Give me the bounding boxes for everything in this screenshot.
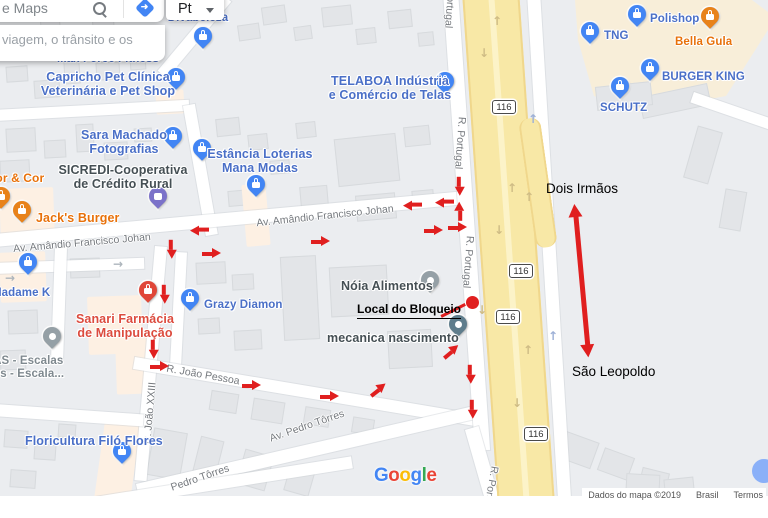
poi-pin-divabeleza[interactable] xyxy=(190,23,215,48)
red-arrow xyxy=(424,229,434,233)
poi-label-telaboa[interactable]: TELABOA Indústriae Comércio de Telas xyxy=(329,74,452,102)
building xyxy=(9,469,36,489)
poi-label-line: SCHUTZ xyxy=(600,102,647,115)
pin-glyph xyxy=(18,208,26,215)
street-label: R. João Pessoa xyxy=(165,363,240,388)
red-arrow xyxy=(320,395,330,399)
road xyxy=(0,404,144,426)
poi-label-grazy-diamon[interactable]: Grazy Diamon xyxy=(204,299,283,312)
shopping-bag-icon xyxy=(181,289,199,307)
red-arrow xyxy=(443,350,453,359)
poi-label-line: mecanica nascimento xyxy=(327,331,459,345)
restaurant-icon xyxy=(13,201,31,219)
google-maps-screenshot: ↑↓↑↑↑↓↓↑↓↑→→R. PortugalR. PortugalR. Por… xyxy=(0,0,768,518)
poi-label-burger-king[interactable]: BURGER KING xyxy=(662,71,745,84)
directions-icon[interactable]: ➜ xyxy=(135,0,155,18)
language-label: Pt xyxy=(178,1,192,17)
building xyxy=(683,125,723,184)
building xyxy=(355,27,377,45)
building xyxy=(403,125,431,148)
traffic-flow-arrow: ↑ xyxy=(548,329,558,343)
building xyxy=(5,65,28,82)
blockade-dot xyxy=(466,296,479,309)
poi-dot-icon xyxy=(43,327,61,345)
route-shield-116: 116 xyxy=(524,427,548,441)
google-logo-letter: o xyxy=(388,465,399,486)
poi-label-sara-machado[interactable]: Sara MachadoFotografias xyxy=(81,128,167,156)
poi-pin-burger-king[interactable] xyxy=(637,55,662,80)
poi-label-line: de Manipulação xyxy=(76,326,174,340)
poi-label-sicredi[interactable]: SICREDI-Cooperativade Crédito Rural xyxy=(58,163,187,191)
red-arrow xyxy=(162,285,166,295)
map-canvas[interactable]: ↑↓↑↑↑↓↓↑↓↑→→R. PortugalR. PortugalR. Por… xyxy=(0,0,768,496)
suggestion-text[interactable]: viagem, o trânsito e os xyxy=(2,32,133,47)
poi-label-madame-k[interactable]: Madame K xyxy=(0,287,50,300)
poi-label-las-escalas[interactable]: LAS - Escalasdos - Escala... xyxy=(0,355,64,381)
traffic-flow-arrow: ↑ xyxy=(524,190,534,204)
poi-label-line: TNG xyxy=(604,30,629,43)
red-arrow xyxy=(150,365,160,369)
pin-glyph xyxy=(144,288,152,295)
poi-label-line: Jack's Burger xyxy=(36,211,119,225)
traffic-flow-arrow: → xyxy=(5,271,15,285)
poi-label-line: Grazy Diamon xyxy=(204,299,283,312)
shopping-bag-icon xyxy=(581,22,599,40)
poi-label-jacks-burger[interactable]: Jack's Burger xyxy=(36,211,119,225)
poi-label-mecanica-nascimento[interactable]: mecanica nascimento xyxy=(327,331,459,345)
road xyxy=(170,252,187,364)
building xyxy=(215,117,241,137)
poi-label-polishop[interactable]: Polishop xyxy=(650,13,699,26)
building xyxy=(5,127,36,153)
traffic-flow-arrow: ↑ xyxy=(528,112,538,126)
shopping-bag-icon xyxy=(194,27,212,45)
poi-pin-estancia-pin2[interactable] xyxy=(243,171,268,196)
building xyxy=(198,317,221,334)
poi-label-line: SICREDI-Cooperativa xyxy=(58,163,187,177)
building xyxy=(280,255,320,341)
poi-label-capricho-pet-clinica[interactable]: Capricho Pet ClínicaVeterinária e Pet Sh… xyxy=(41,70,175,98)
red-arrow xyxy=(311,240,321,244)
building xyxy=(417,31,434,47)
google-logo-letter: e xyxy=(426,465,436,486)
poi-label-floricultura-filo[interactable]: Floricultura Filó Flores xyxy=(25,434,163,448)
poi-label-line: bor & Cor xyxy=(0,172,44,185)
pin-glyph xyxy=(646,66,654,73)
poi-label-line: Bella Gula xyxy=(675,36,732,49)
red-arrow xyxy=(448,226,458,230)
map-attribution: Dados do mapa ©2019BrasilTermos xyxy=(582,488,766,503)
building xyxy=(44,139,67,158)
poi-label-line: Capricho Pet Clínica xyxy=(41,70,175,84)
traffic-flow-arrow: ↓ xyxy=(479,46,489,60)
attribution-link[interactable]: Termos xyxy=(733,490,763,500)
route-shield-116: 116 xyxy=(496,310,520,324)
building xyxy=(195,261,226,285)
poi-label-line: Madame K xyxy=(0,287,50,300)
building xyxy=(293,25,313,41)
shopping-bag-icon xyxy=(611,77,629,95)
google-logo-letter: G xyxy=(374,465,388,486)
search-icon[interactable] xyxy=(93,2,106,15)
shopping-bag-icon xyxy=(19,253,37,271)
building xyxy=(261,4,287,25)
pin-glyph xyxy=(586,29,594,36)
poi-pin-grazy-diamon[interactable] xyxy=(177,285,202,310)
poi-label-line: Estância Loterias xyxy=(207,147,312,161)
google-logo-letter: g xyxy=(411,465,422,486)
poi-label-line: Veterinária e Pet Shop xyxy=(41,84,175,98)
building xyxy=(250,398,285,425)
poi-pin-bella-gula[interactable] xyxy=(697,3,722,28)
red-arrow xyxy=(412,203,422,207)
poi-label-noia-alimentos[interactable]: Nóia Alimentos xyxy=(341,279,433,293)
traffic-flow-arrow: ↑ xyxy=(507,181,517,195)
shopping-bag-icon xyxy=(641,59,659,77)
traffic-flow-arrow: ↓ xyxy=(494,223,504,237)
poi-pin-sanari-farmacia[interactable] xyxy=(135,277,160,302)
red-arrow xyxy=(242,384,252,388)
pin-glyph xyxy=(455,321,462,328)
poi-label-bella-gula[interactable]: Bella Gula xyxy=(675,36,732,49)
building xyxy=(8,309,39,334)
road xyxy=(0,100,189,121)
pin-glyph xyxy=(154,193,162,200)
building xyxy=(233,329,262,350)
poi-label-sanari-farmacia[interactable]: Sanari Farmáciade Manipulação xyxy=(76,312,174,340)
poi-label-line: Sanari Farmácia xyxy=(76,312,174,326)
pin-glyph xyxy=(199,34,207,41)
pin-glyph xyxy=(24,260,32,267)
shopping-bag-icon xyxy=(247,175,265,193)
pin-glyph xyxy=(616,84,624,91)
annotation-local-do-bloqueio: Local do Bloqueio xyxy=(357,302,461,319)
divider xyxy=(123,0,124,18)
route-shield-116: 116 xyxy=(509,264,533,278)
poi-pin-schutz[interactable] xyxy=(607,73,632,98)
attribution-link[interactable]: Brasil xyxy=(696,490,719,500)
poi-label-line: LAS - Escalas xyxy=(0,355,64,368)
poi-label-line: Nóia Alimentos xyxy=(341,279,433,293)
pin-glyph xyxy=(118,449,126,456)
building xyxy=(295,121,317,139)
poi-label-line: TELABOA Indústria xyxy=(329,74,452,88)
poi-label-line: Polishop xyxy=(650,13,699,26)
poi-label-line: de Crédito Rural xyxy=(58,177,187,191)
poi-label-tng[interactable]: TNG xyxy=(604,30,629,43)
red-arrow xyxy=(470,400,474,410)
building xyxy=(321,4,353,27)
traffic-flow-arrow: ↑ xyxy=(523,343,533,357)
poi-label-bor-e-cor[interactable]: bor & Cor xyxy=(0,172,44,185)
poi-pin-polishop[interactable] xyxy=(624,1,649,26)
pin-glyph xyxy=(633,12,641,19)
search-input[interactable]: e Maps xyxy=(2,0,48,16)
restaurant-icon xyxy=(0,187,10,205)
red-arrow xyxy=(457,177,461,187)
building xyxy=(334,133,401,187)
pharmacy-icon xyxy=(139,281,157,299)
red-arrow xyxy=(169,240,173,250)
pin-glyph xyxy=(169,134,177,141)
poi-label-estancia-loterias[interactable]: Estância LoteriasMana Modas xyxy=(207,147,312,175)
language-button[interactable]: Pt xyxy=(166,0,224,20)
poi-pin-tng[interactable] xyxy=(577,18,602,43)
building xyxy=(719,188,748,231)
annotation-sao-leopoldo: São Leopoldo xyxy=(572,364,655,379)
poi-label-line: Floricultura Filó Flores xyxy=(25,434,163,448)
pin-glyph xyxy=(49,333,56,340)
google-logo: Google xyxy=(374,465,436,487)
route-shield-116: 116 xyxy=(492,100,516,114)
red-arrow xyxy=(444,200,454,204)
poi-pin-las-escalas[interactable] xyxy=(39,323,64,348)
google-logo-letter: o xyxy=(399,465,410,486)
pin-glyph xyxy=(252,182,260,189)
poi-pin-madame-k[interactable] xyxy=(15,249,40,274)
traffic-flow-arrow: ↓ xyxy=(512,396,522,410)
attribution-copyright: Dados do mapa ©2019 xyxy=(588,490,681,500)
chevron-down-icon[interactable] xyxy=(206,8,214,13)
building xyxy=(387,9,413,29)
search-box[interactable]: e Maps ➜ xyxy=(0,0,164,22)
pin-glyph xyxy=(186,296,194,303)
poi-label-line: BURGER KING xyxy=(662,71,745,84)
shopping-bag-icon xyxy=(628,5,646,23)
red-arrow xyxy=(199,228,209,232)
double-arrow-dois-irmaos-sao-leopoldo xyxy=(574,216,591,346)
poi-pin-jacks-burger[interactable] xyxy=(9,197,34,222)
red-arrow xyxy=(458,211,462,221)
poi-label-schutz[interactable]: SCHUTZ xyxy=(600,102,647,115)
red-arrow xyxy=(151,340,155,350)
red-arrow xyxy=(370,388,380,397)
red-arrow xyxy=(202,252,212,256)
poi-label-line: dos - Escala... xyxy=(0,368,64,381)
traffic-flow-arrow: ↓ xyxy=(477,303,487,317)
traffic-flow-arrow: → xyxy=(113,257,123,271)
pin-glyph xyxy=(706,14,714,21)
search-suggestion-panel[interactable]: viagem, o trânsito e os xyxy=(0,25,165,61)
poi-label-line: Fotografias xyxy=(81,142,167,156)
pin-glyph xyxy=(198,146,206,153)
poi-label-line: e Comércio de Telas xyxy=(329,88,452,102)
building xyxy=(232,273,255,290)
poi-label-line: Sara Machado xyxy=(81,128,167,142)
poi-label-line: Mana Modas xyxy=(207,161,312,175)
restaurant-icon xyxy=(701,7,719,25)
building xyxy=(209,390,240,414)
red-arrow xyxy=(468,365,472,375)
annotation-dois-irmaos: Dois Irmãos xyxy=(546,181,618,196)
pin-glyph xyxy=(0,194,5,201)
traffic-flow-arrow: ↑ xyxy=(492,14,502,28)
building xyxy=(237,23,261,42)
